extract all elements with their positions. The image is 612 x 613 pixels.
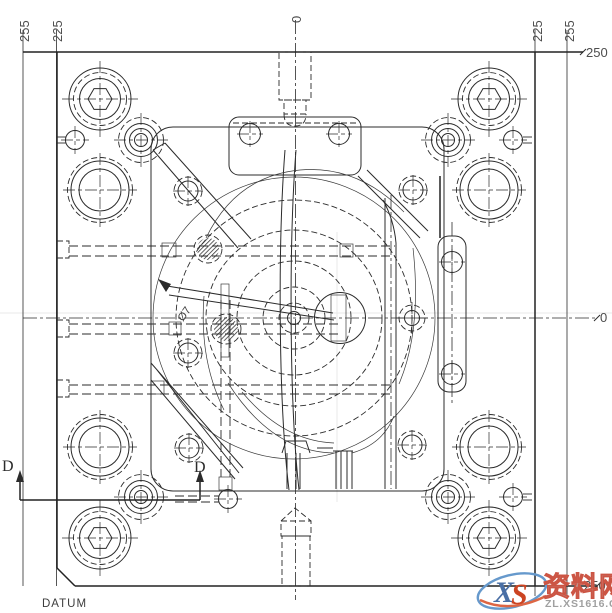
dim-top-right: 250 <box>586 45 608 60</box>
dim-right-zero: 0 <box>600 310 607 325</box>
faint-guides <box>0 232 612 502</box>
watermark-logo-s: S <box>511 578 528 611</box>
support-pillar-hidden <box>281 508 311 586</box>
sprue-assembly <box>229 52 361 175</box>
casting-part <box>151 143 428 490</box>
corner-screws <box>62 61 527 576</box>
mold-drawing-page: D D 255 225 0 225 255 250 0 250 Ø7 DATUM… <box>0 0 612 613</box>
watermark: X S 资料网 ZL.XS1616.COM <box>474 567 612 613</box>
watermark-site-url: ZL.XS1616.COM <box>545 598 612 610</box>
dim-right-inner: 225 <box>530 20 545 42</box>
dim-left-outer: 255 <box>17 20 32 42</box>
section-letter-right: D <box>194 459 206 476</box>
datum-label: DATUM <box>42 598 87 610</box>
section-letter-left: D <box>2 458 14 475</box>
dim-center-zero: 0 <box>289 16 304 23</box>
dim-right-outer: 255 <box>562 20 577 42</box>
runner-diameter-label: Ø7 <box>176 305 194 324</box>
dim-left-inner: 225 <box>50 20 65 42</box>
water-lines <box>57 241 395 490</box>
cad-drawing: D D 255 225 0 225 255 250 0 250 Ø7 DATUM… <box>0 0 612 613</box>
